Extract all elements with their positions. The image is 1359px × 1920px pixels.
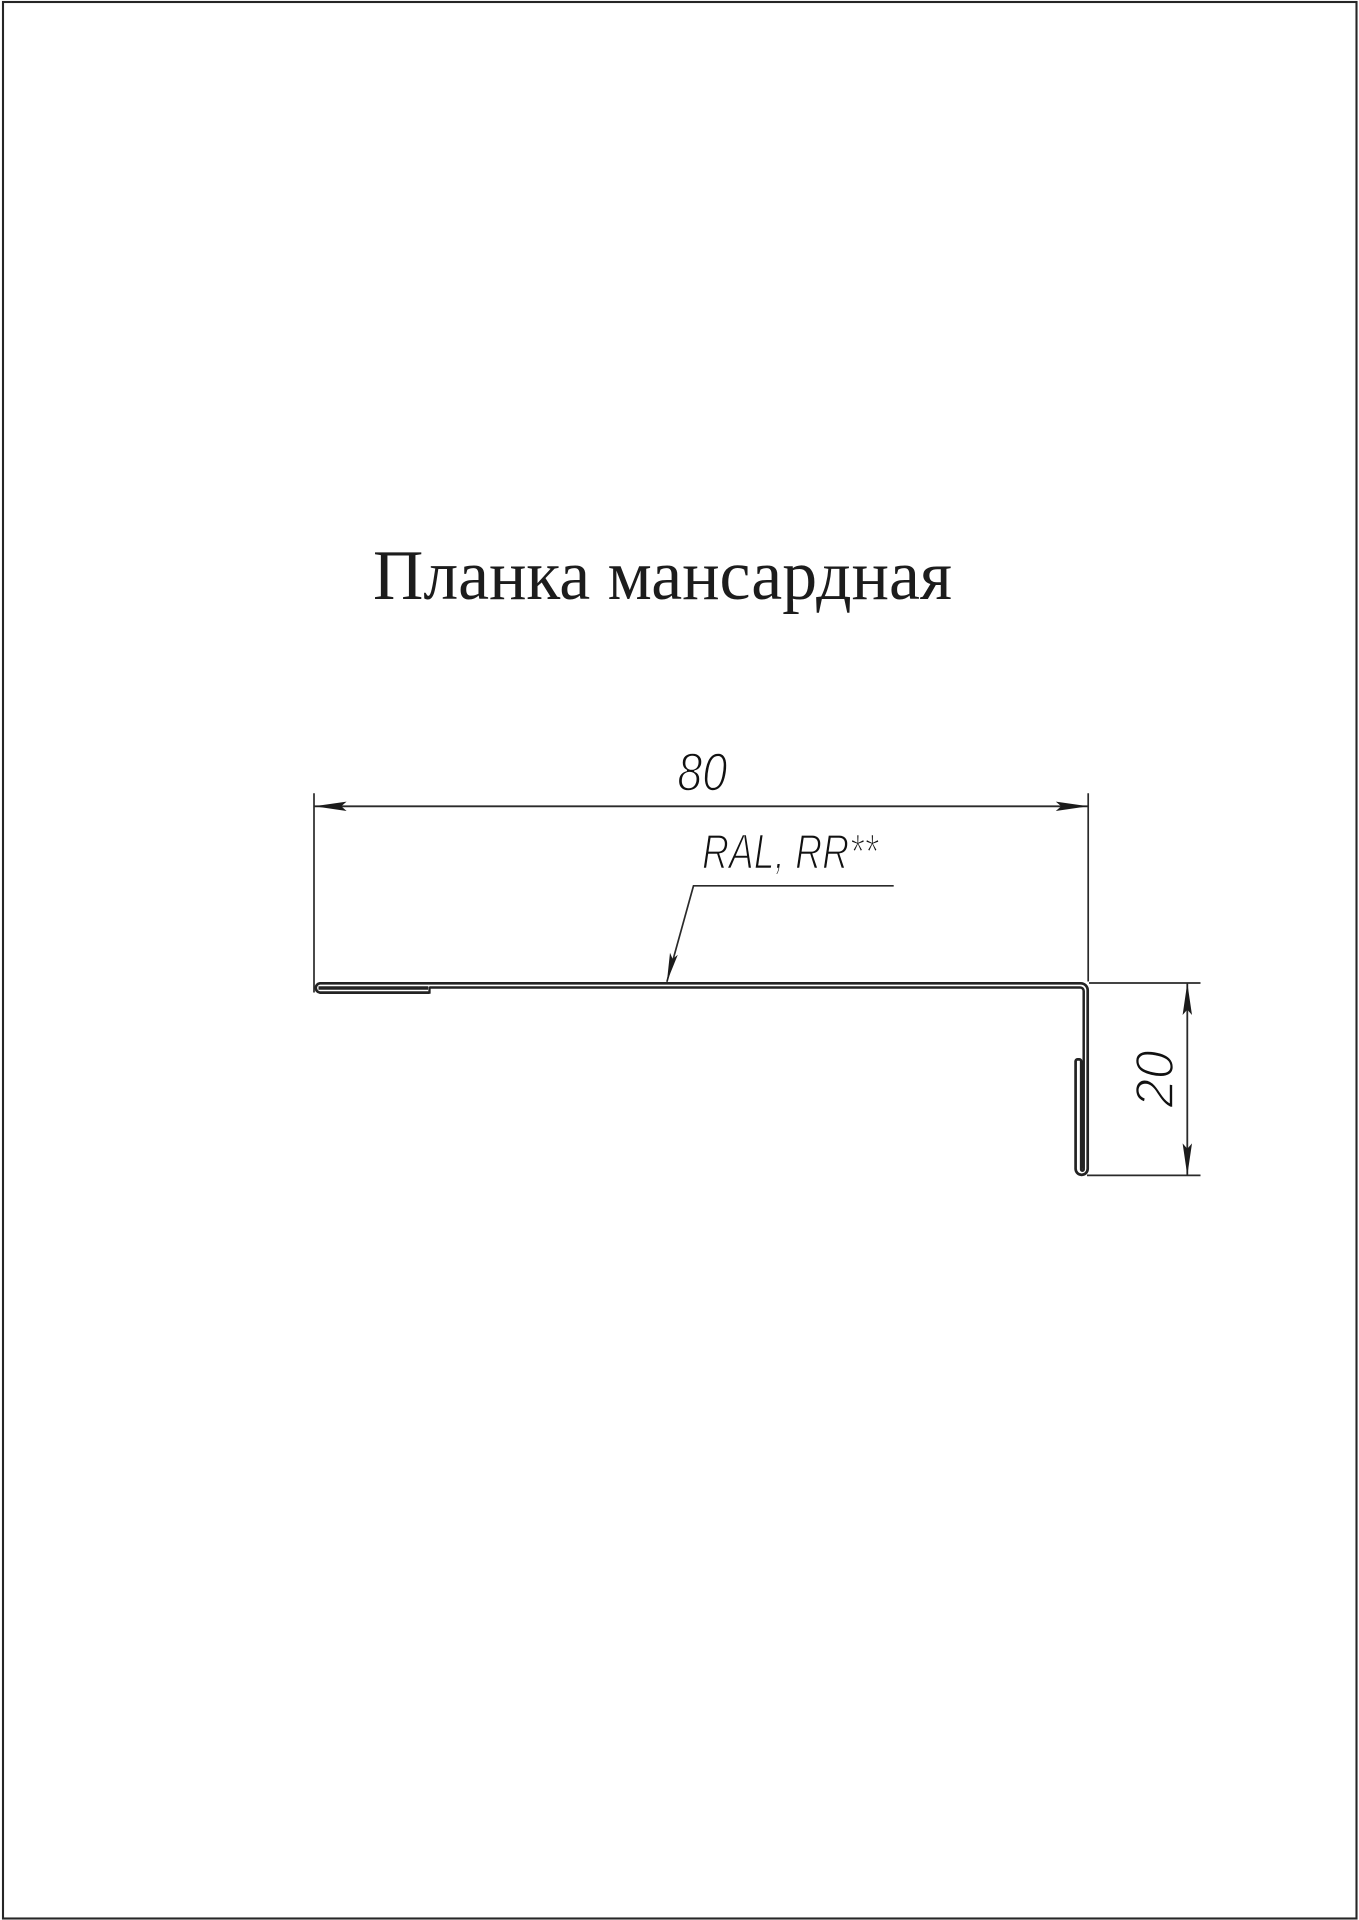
svg-text:80: 80	[677, 743, 727, 803]
svg-text:RAL, RR**: RAL, RR**	[702, 825, 879, 880]
svg-text:Планка мансардная: Планка мансардная	[373, 537, 952, 615]
svg-text:20: 20	[1125, 1051, 1185, 1109]
